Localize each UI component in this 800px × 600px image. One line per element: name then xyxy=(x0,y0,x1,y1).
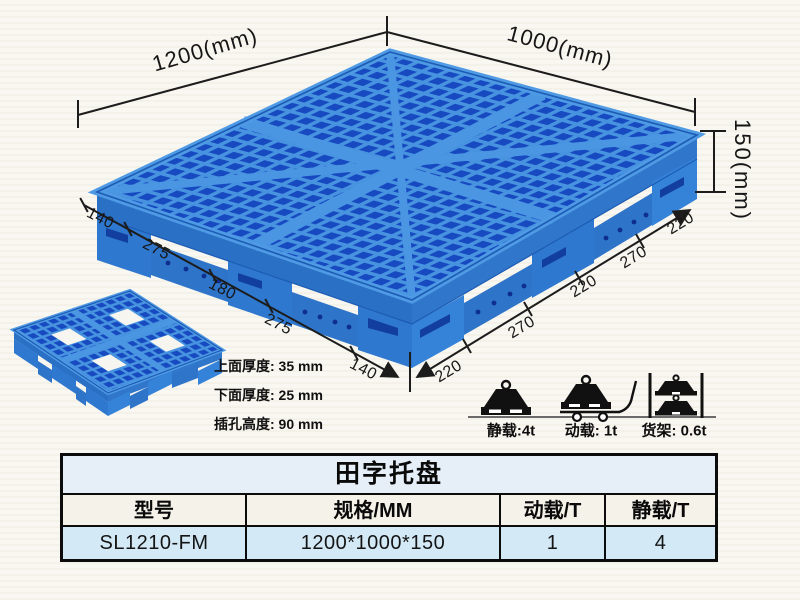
load-icons xyxy=(468,373,716,421)
cell-spec: 1200*1000*150 xyxy=(245,527,499,559)
main-pallet-illustration xyxy=(97,52,697,368)
dynamic-load-label: 动载: 1t xyxy=(565,420,618,441)
pallet-datasheet: 1200(mm) 1000(mm) 150(mm) 140 275 180 27… xyxy=(0,0,800,600)
col-header-spec: 规格/MM xyxy=(245,495,499,527)
note-fork-height: 插孔高度: 90 mm xyxy=(214,414,323,434)
dim-label-height: 150(mm) xyxy=(729,119,755,221)
cell-dynamic-load: 1 xyxy=(499,527,604,559)
static-load-label: 静载:4t xyxy=(487,420,535,441)
spec-table: 田字托盘 型号 规格/MM 动载/T 静载/T SL1210-FM 1200*1… xyxy=(60,453,718,562)
table-header-row: 型号 规格/MM 动载/T 静载/T xyxy=(63,495,715,527)
cell-model: SL1210-FM xyxy=(63,527,245,559)
rack-load-label: 货架: 0.6t xyxy=(641,420,706,441)
note-top-thickness: 上面厚度: 35 mm xyxy=(214,356,323,376)
col-header-dynamic-load: 动载/T xyxy=(499,495,604,527)
rack-load-icon xyxy=(650,373,702,418)
thickness-notes: 上面厚度: 35 mm 下面厚度: 25 mm 插孔高度: 90 mm xyxy=(214,356,323,434)
table-data-row: SL1210-FM 1200*1000*150 1 4 xyxy=(63,527,715,559)
col-header-model: 型号 xyxy=(63,495,245,527)
static-load-icon xyxy=(481,381,531,415)
small-pallet-illustration xyxy=(14,291,222,416)
dynamic-load-icon xyxy=(560,376,636,421)
cell-static-load: 4 xyxy=(604,527,715,559)
table-title: 田字托盘 xyxy=(63,456,715,495)
col-header-static-load: 静载/T xyxy=(604,495,715,527)
note-bottom-thickness: 下面厚度: 25 mm xyxy=(214,385,323,405)
